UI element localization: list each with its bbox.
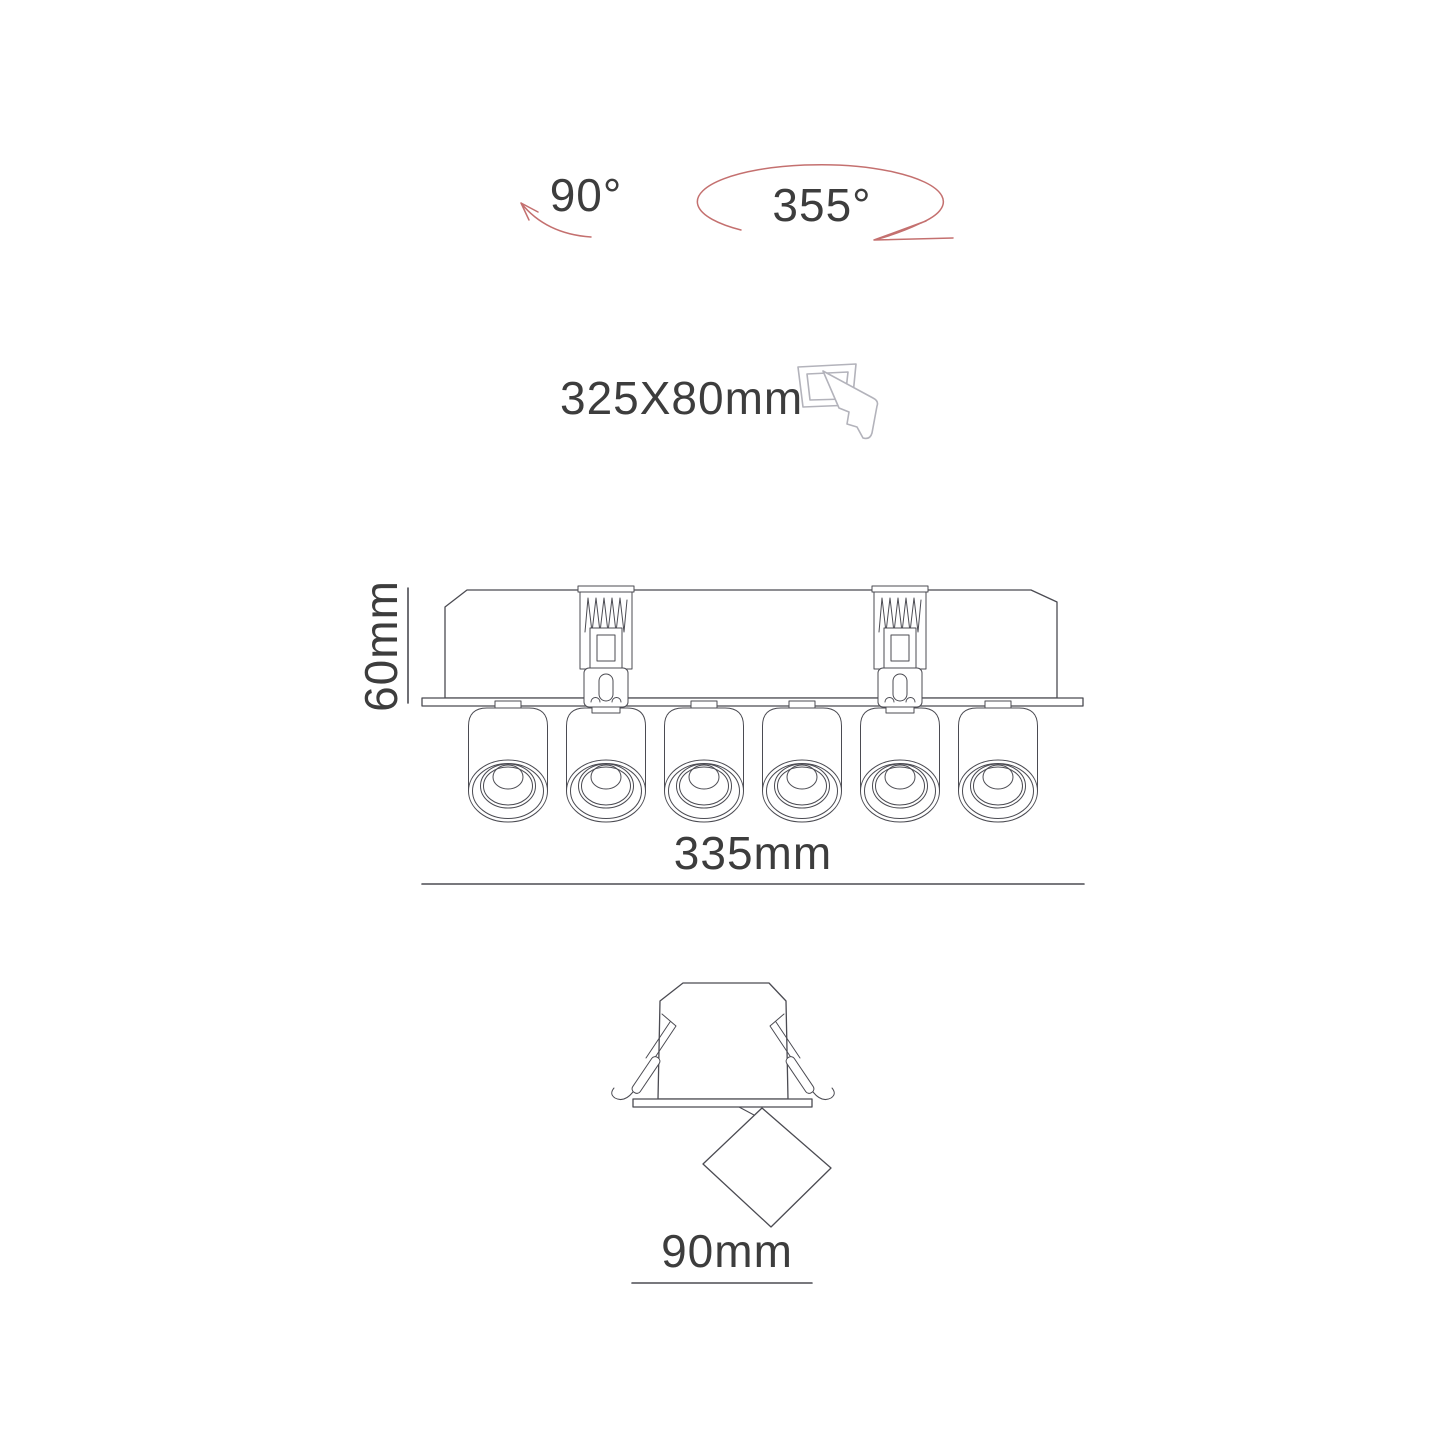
length-dimension-label: 335mm [674, 827, 832, 879]
cutout-size-label: 325X80mm [560, 372, 803, 424]
spotlight-head [861, 701, 940, 822]
diagram-svg: 90° 355° 325X80mm 60mm 335mm [0, 0, 1445, 1445]
rotation-angle-label: 355° [772, 179, 871, 231]
front-housing-outline [658, 983, 788, 1099]
tilt-angle-label: 90° [550, 169, 623, 221]
front-trim-flange [633, 1099, 812, 1107]
height-dimension-label: 60mm [355, 580, 407, 712]
housing-outline [445, 590, 1057, 698]
width-dimension-label: 90mm [661, 1225, 793, 1277]
pivot-yoke [739, 1107, 754, 1115]
front-view-drawing: 90mm [612, 983, 835, 1283]
spotlight-head [567, 701, 646, 822]
mounting-clip [872, 586, 928, 713]
tilt-annotation: 90° [521, 169, 622, 237]
mounting-clip [578, 586, 634, 713]
rotation-annotation: 355° [697, 165, 953, 240]
cutout-icon [798, 364, 878, 438]
spotlight-head [763, 701, 842, 822]
spotlight-head [959, 701, 1038, 822]
side-view-drawing: 60mm 335mm [355, 580, 1084, 884]
spotlight-dimension-diagram: 90° 355° 325X80mm 60mm 335mm [0, 0, 1445, 1445]
spotlight-head [469, 701, 548, 822]
tilted-head [703, 1108, 831, 1227]
spotlight-head [665, 701, 744, 822]
cutout-annotation: 325X80mm [560, 364, 878, 438]
